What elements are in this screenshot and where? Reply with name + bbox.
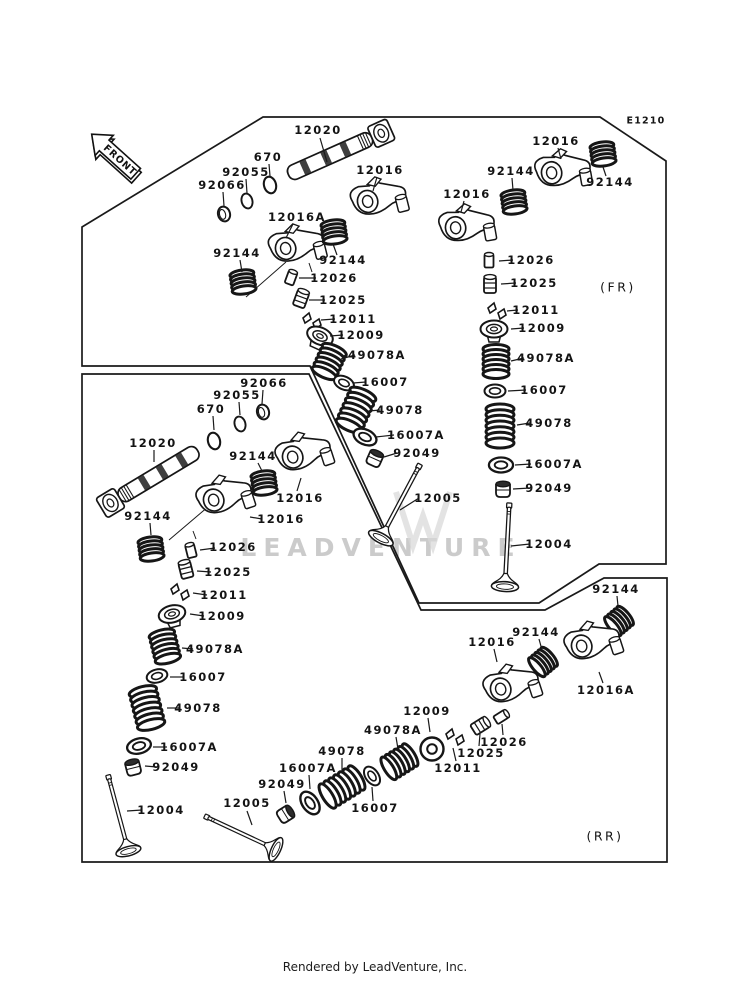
part-label-12020: 12020 bbox=[294, 123, 342, 137]
spring-m-49078A-icon bbox=[378, 742, 421, 782]
front-arrow-icon: FRONT bbox=[81, 124, 147, 188]
part-label-92144: 92144 bbox=[592, 582, 640, 596]
leader-line bbox=[223, 192, 224, 206]
part-label-49078: 49078 bbox=[174, 701, 222, 715]
cyl-12026-icon bbox=[493, 709, 510, 725]
part-label-12025: 12025 bbox=[510, 276, 558, 290]
spring-l-49078-icon bbox=[486, 404, 514, 448]
part-label-12011: 12011 bbox=[434, 761, 482, 775]
oring-92055-icon bbox=[233, 415, 247, 432]
cyl-12026-icon bbox=[185, 542, 197, 559]
part-label-49078: 49078 bbox=[376, 403, 424, 417]
seal-92049-icon bbox=[496, 481, 510, 497]
spring-l-49078-icon bbox=[128, 683, 166, 732]
part-label-16007A: 16007A bbox=[525, 457, 583, 471]
part-label-12016A: 12016A bbox=[577, 683, 635, 697]
part-label-92144: 92144 bbox=[487, 164, 535, 178]
part-label-12026: 12026 bbox=[480, 735, 528, 749]
retainer-12009-icon bbox=[481, 321, 508, 343]
washer-16007-icon bbox=[485, 385, 506, 398]
part-label-16007: 16007 bbox=[351, 801, 399, 815]
leader-line bbox=[297, 478, 301, 491]
part-label-92049: 92049 bbox=[258, 777, 306, 791]
part-label-92066: 92066 bbox=[198, 178, 246, 192]
footer-credit: Rendered by LeadVenture, Inc. bbox=[0, 960, 750, 974]
part-label-12009: 12009 bbox=[518, 321, 566, 335]
diagram-code: E1210 bbox=[627, 116, 666, 127]
part-label-49078A: 49078A bbox=[364, 723, 422, 737]
lifter-12025-icon bbox=[178, 558, 194, 579]
rocker-12016-icon bbox=[532, 144, 593, 193]
rocker-12016-icon bbox=[192, 467, 256, 522]
keepers-12011-icon bbox=[171, 584, 189, 600]
seal-92049-icon bbox=[276, 804, 297, 824]
part-label-12016: 12016 bbox=[468, 635, 516, 649]
part-label-12009: 12009 bbox=[337, 328, 385, 342]
leader-line bbox=[599, 672, 603, 683]
part-label-92144: 92144 bbox=[229, 449, 277, 463]
axis-line bbox=[193, 531, 196, 539]
spring-s-92144-icon bbox=[250, 469, 277, 496]
retainer-12009-icon bbox=[157, 602, 188, 629]
spring-s-92144-icon bbox=[500, 188, 527, 215]
part-label-12016: 12016 bbox=[356, 163, 404, 177]
cyl-12026-icon bbox=[285, 268, 299, 285]
rocker-12016-icon bbox=[436, 199, 497, 248]
leader-line bbox=[512, 178, 513, 190]
spring-l-49078-icon bbox=[334, 384, 377, 436]
part-label-92144: 92144 bbox=[512, 625, 560, 639]
part-label-49078A: 49078A bbox=[517, 351, 575, 365]
part-label-12016: 12016 bbox=[257, 512, 305, 526]
part-label-12011: 12011 bbox=[329, 312, 377, 326]
part-label-12026: 12026 bbox=[507, 253, 555, 267]
parts-diagram: LEADVENTURE12020670920559206612016A12016… bbox=[0, 0, 750, 981]
spring-m-49078A-icon bbox=[483, 345, 509, 379]
part-label-12026: 12026 bbox=[310, 271, 358, 285]
leader-line bbox=[284, 791, 286, 803]
part-label-49078A: 49078A bbox=[348, 348, 406, 362]
washer-16007A-icon bbox=[489, 458, 513, 473]
part-label-49078: 49078 bbox=[525, 416, 573, 430]
cyl-12026-icon bbox=[485, 253, 494, 268]
spring-s-92144-icon bbox=[589, 140, 616, 167]
part-label-92049: 92049 bbox=[152, 760, 200, 774]
oring-92055-icon bbox=[240, 192, 254, 209]
keepers-12011-icon bbox=[446, 729, 464, 745]
part-label-12011: 12011 bbox=[512, 303, 560, 317]
leader-line bbox=[309, 775, 310, 789]
part-label-12025: 12025 bbox=[204, 565, 252, 579]
leader-line bbox=[239, 402, 240, 415]
camshaft-12020-icon bbox=[96, 441, 204, 518]
seal-92049-icon bbox=[365, 448, 384, 468]
part-label-12016A: 12016A bbox=[268, 210, 326, 224]
part-label-12005: 12005 bbox=[223, 796, 271, 810]
leader-line bbox=[617, 596, 618, 606]
ringface-12009-icon bbox=[421, 738, 444, 761]
part-label-16007: 16007 bbox=[520, 383, 568, 397]
leader-line bbox=[247, 811, 252, 825]
part-label-12016: 12016 bbox=[443, 187, 491, 201]
oring-670-icon bbox=[206, 431, 222, 450]
spring-m-49078A-icon bbox=[148, 627, 181, 666]
rocker-12016-icon bbox=[271, 424, 335, 479]
part-label-16007: 16007 bbox=[179, 670, 227, 684]
keepers-12011-icon bbox=[488, 303, 506, 319]
part-label-12016: 12016 bbox=[532, 134, 580, 148]
washer-16007-icon bbox=[145, 667, 169, 685]
part-label-12025: 12025 bbox=[319, 293, 367, 307]
part-label-670: 670 bbox=[197, 402, 226, 416]
part-label-12004: 12004 bbox=[137, 803, 185, 817]
leader-line bbox=[150, 523, 151, 535]
part-label-92049: 92049 bbox=[525, 481, 573, 495]
parts-diagram-page: LEADVENTURE12020670920559206612016A12016… bbox=[0, 0, 750, 981]
part-label-16007A: 16007A bbox=[279, 761, 337, 775]
part-label-92144: 92144 bbox=[586, 175, 634, 189]
spring-s-92144-icon bbox=[229, 268, 256, 295]
part-label-92144: 92144 bbox=[124, 509, 172, 523]
part-label-12011: 12011 bbox=[200, 588, 248, 602]
leader-line bbox=[428, 718, 430, 732]
lifter-12025-icon bbox=[293, 287, 311, 308]
spring-s-92144-icon bbox=[137, 535, 164, 562]
part-label-12005: 12005 bbox=[414, 491, 462, 505]
part-label-16007A: 16007A bbox=[387, 428, 445, 442]
part-label-12009: 12009 bbox=[403, 704, 451, 718]
leader-line bbox=[494, 649, 497, 662]
valve-12005-icon bbox=[199, 804, 285, 862]
rocker-12016-icon bbox=[347, 171, 410, 223]
leader-line bbox=[262, 390, 263, 404]
seal-92049-icon bbox=[124, 758, 141, 777]
part-label-92144: 92144 bbox=[213, 246, 261, 260]
rr-zone-label: (RR) bbox=[586, 829, 623, 844]
part-label-16007: 16007 bbox=[361, 375, 409, 389]
fr-zone-label: (FR) bbox=[600, 280, 636, 295]
part-label-92144: 92144 bbox=[319, 253, 367, 267]
part-label-12026: 12026 bbox=[209, 540, 257, 554]
part-label-12016: 12016 bbox=[276, 491, 324, 505]
part-label-12009: 12009 bbox=[198, 609, 246, 623]
disc-92066-icon bbox=[255, 403, 270, 421]
leader-line bbox=[258, 463, 262, 471]
leader-line bbox=[246, 179, 247, 193]
leader-line bbox=[213, 416, 214, 430]
leader-line bbox=[502, 724, 503, 735]
part-label-670: 670 bbox=[254, 150, 283, 164]
leader-line bbox=[372, 787, 373, 801]
part-label-92055: 92055 bbox=[213, 388, 261, 402]
disc-92066-icon bbox=[216, 205, 231, 223]
lifter-12025-icon bbox=[470, 715, 492, 735]
part-label-92049: 92049 bbox=[393, 446, 441, 460]
part-label-92055: 92055 bbox=[222, 165, 270, 179]
lifter-12025-icon bbox=[484, 275, 496, 293]
valve-12004-icon bbox=[96, 772, 142, 859]
part-label-49078: 49078 bbox=[318, 744, 366, 758]
part-label-12004: 12004 bbox=[525, 537, 573, 551]
part-label-49078A: 49078A bbox=[186, 642, 244, 656]
washer-16007A-icon bbox=[125, 736, 152, 756]
part-label-16007A: 16007A bbox=[160, 740, 218, 754]
part-label-12020: 12020 bbox=[129, 436, 177, 450]
axis-line bbox=[169, 506, 209, 540]
leader-line bbox=[453, 748, 456, 761]
